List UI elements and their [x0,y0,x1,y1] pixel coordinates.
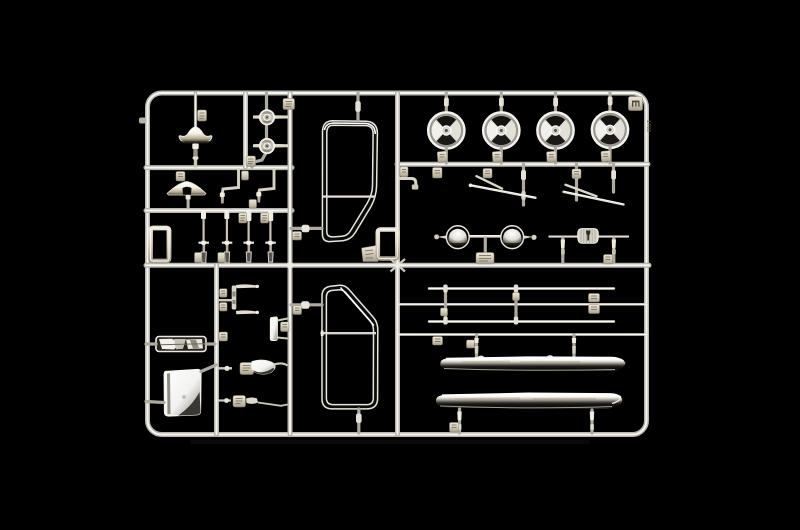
svg-text:E: E [629,100,641,107]
svg-text:1703: 1703 [645,120,651,132]
